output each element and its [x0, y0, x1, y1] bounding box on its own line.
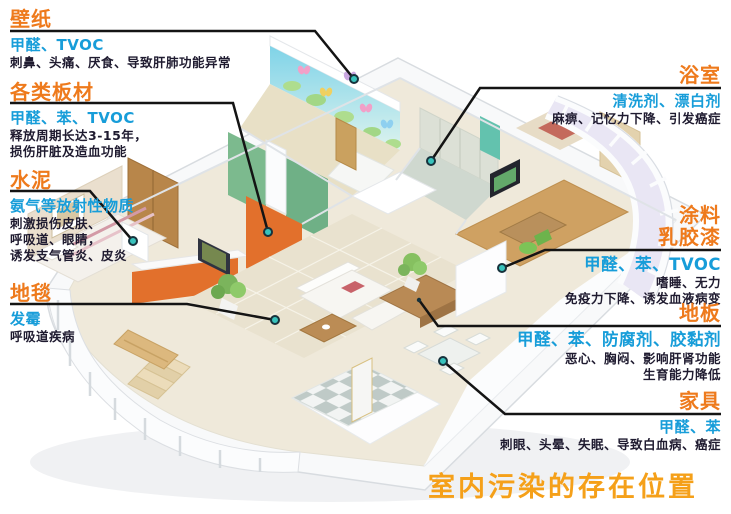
dot-floor [417, 298, 421, 302]
infographic-indoor-pollution: 壁纸 甲醛、TVOC 刺鼻、头痛、厌食、导致肝肺功能异常 各类板材 甲醛、苯、T… [0, 0, 731, 514]
callout-effect: 诱发支气管炎、皮炎 [10, 249, 134, 263]
callout-bathroom: 浴室 清洗剂、漂白剂 麻痹、记忆力下降、引发癌症 [552, 64, 721, 126]
callout-boards: 各类板材 甲醛、苯、TVOC 释放周期长达3-15年， 损伤肝脏及造血功能 [10, 81, 147, 159]
dot-paint [498, 264, 506, 272]
callout-pollutants: 甲醛、苯、TVOC [565, 256, 721, 274]
callout-effect: 呼吸道、眼睛， [10, 233, 134, 247]
callout-furniture: 家具 甲醛、苯 刺眼、头晕、失眠、导致白血病、癌症 [500, 390, 721, 452]
callout-wallpaper: 壁纸 甲醛、TVOC 刺鼻、头痛、厌食、导致肝肺功能异常 [10, 8, 231, 70]
callout-effect: 呼吸道疾病 [10, 330, 75, 344]
callout-effect: 刺眼、头晕、失眠、导致白血病、癌症 [500, 438, 721, 452]
callout-floor: 地板 甲醛、苯、防腐剂、胶黏剂 恶心、胸闷、影响肝肾功能 生育能力降低 [517, 302, 721, 382]
callout-effect: 释放周期长达3-15年， [10, 129, 147, 143]
callout-pollutants: 甲醛、苯 [500, 419, 721, 436]
callout-title: 涂料 [565, 204, 721, 226]
dot-bathroom [427, 157, 435, 165]
callout-pollutants: 发霉 [10, 311, 75, 328]
callout-pollutants: 清洗剂、漂白剂 [552, 93, 721, 110]
callout-effect: 刺激损伤皮肤、 [10, 217, 134, 231]
dot-furniture [439, 357, 447, 365]
callout-effect: 损伤肝脏及造血功能 [10, 145, 147, 159]
callout-pollutants: 甲醛、TVOC [10, 37, 231, 54]
callout-cement: 水泥 氨气等放射性物质 刺激损伤皮肤、 呼吸道、眼睛， 诱发支气管炎、皮炎 [10, 169, 134, 263]
callout-effect: 刺鼻、头痛、厌食、导致肝肺功能异常 [10, 56, 231, 70]
callout-title: 地板 [517, 302, 721, 324]
kitchen-door [352, 358, 372, 422]
callout-title: 水泥 [10, 169, 134, 191]
callout-pollutants: 甲醛、苯、TVOC [10, 110, 147, 127]
callout-pollutants: 甲醛、苯、防腐剂、胶黏剂 [517, 331, 721, 349]
dot-wallpaper [350, 75, 358, 83]
dot-boards [264, 228, 272, 236]
callout-title: 浴室 [552, 64, 721, 86]
green-chair [519, 242, 537, 254]
page-title: 室内污染的存在位置 [428, 465, 698, 504]
callout-effect: 麻痹、记忆力下降、引发癌症 [552, 112, 721, 126]
dot-carpet [271, 316, 279, 324]
callout-pollutants: 氨气等放射性物质 [10, 198, 134, 215]
callout-paint: 涂料 乳胶漆 甲醛、苯、TVOC 嗜睡、无力 免疫力下降、诱发血液病变 [565, 204, 721, 306]
callout-title: 家具 [500, 390, 721, 412]
callout-effect: 恶心、胸闷、影响肝肾功能 [517, 352, 721, 366]
callout-carpet: 地毯 发霉 呼吸道疾病 [10, 282, 75, 344]
callout-effect: 嗜睡、无力 [565, 276, 721, 290]
callout-effect: 生育能力降低 [517, 368, 721, 382]
callout-title: 壁纸 [10, 8, 231, 30]
callout-title: 各类板材 [10, 81, 147, 103]
callout-title-line2: 乳胶漆 [565, 226, 721, 248]
callout-title: 地毯 [10, 282, 75, 304]
